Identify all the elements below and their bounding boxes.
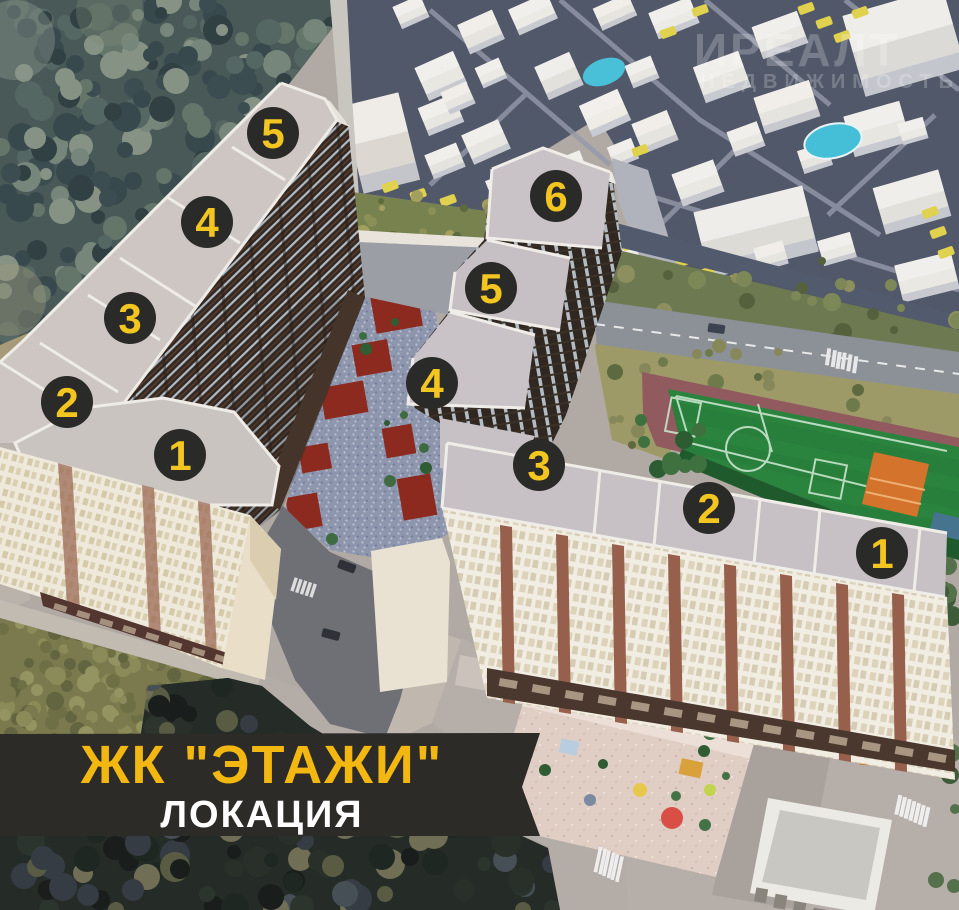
- svg-text:5: 5: [479, 265, 502, 312]
- svg-text:ЛОКАЦИЯ: ЛОКАЦИЯ: [160, 794, 363, 836]
- svg-text:4: 4: [195, 199, 219, 246]
- svg-text:ИРЕАЛТ: ИРЕАЛТ: [694, 24, 901, 76]
- svg-text:4: 4: [420, 360, 444, 407]
- svg-text:6: 6: [544, 173, 567, 220]
- svg-text:5: 5: [261, 110, 284, 157]
- svg-text:3: 3: [527, 442, 550, 489]
- svg-text:1: 1: [870, 530, 893, 577]
- svg-text:2: 2: [55, 379, 78, 426]
- svg-text:3: 3: [118, 295, 141, 342]
- svg-text:ЖК "ЭТАЖИ": ЖК "ЭТАЖИ": [80, 735, 444, 795]
- svg-text:1: 1: [168, 432, 191, 479]
- svg-text:2: 2: [697, 485, 720, 532]
- svg-text:НЕДВИЖИМОСТЬ: НЕДВИЖИМОСТЬ: [700, 71, 959, 93]
